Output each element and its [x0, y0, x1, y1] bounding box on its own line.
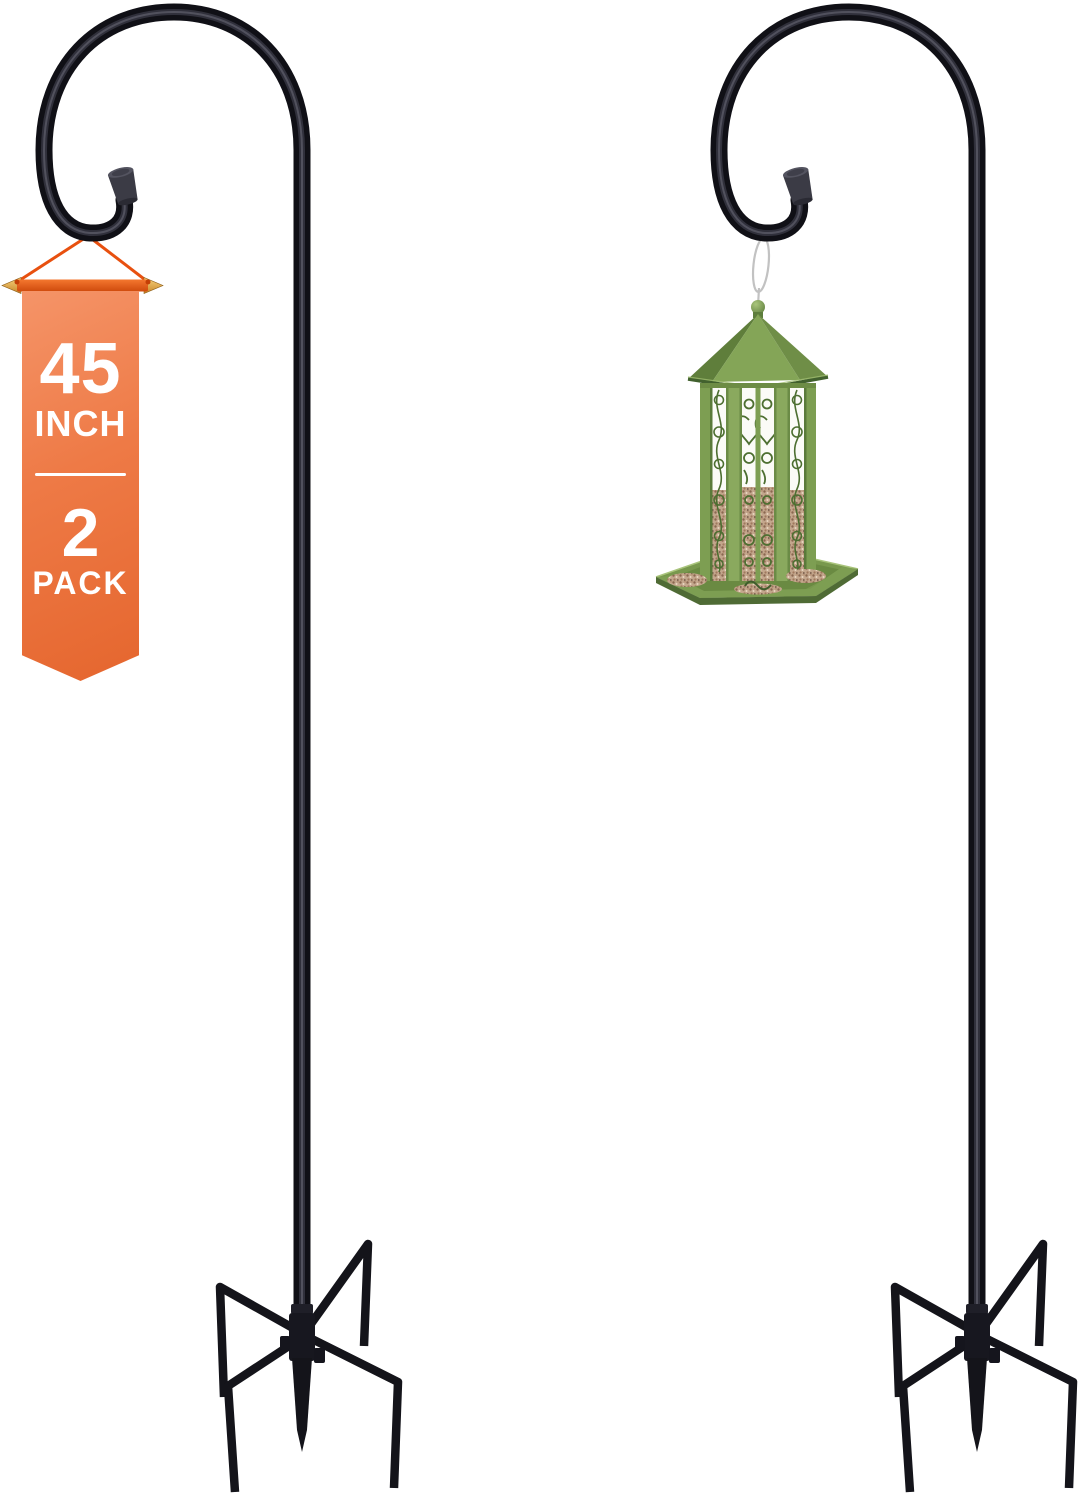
tray-seed-left: [667, 573, 707, 587]
product-scene: [0, 0, 1079, 1500]
badge-pack-value: 2: [22, 499, 139, 567]
badge-pack-unit: PACK: [22, 567, 139, 599]
feeder-body: [700, 383, 816, 581]
feeder-finial-ball: [751, 300, 765, 314]
bird-feeder: [656, 300, 858, 605]
string-knot-left: [15, 280, 20, 285]
badge-divider: [35, 473, 126, 476]
size-badge-ribbon: 45 INCH 2 PACK: [22, 291, 139, 681]
center-panel-mullion: [756, 385, 761, 581]
badge-string-right: [88, 236, 148, 282]
tray-seed-right: [786, 569, 826, 583]
string-knot-right: [146, 280, 151, 285]
feeder-hanger-wire: [751, 237, 772, 306]
feeder-roof: [688, 314, 828, 390]
right-shepherd-hook: [719, 12, 1073, 1492]
badge-string-left: [17, 236, 88, 282]
badge-size-value: 45: [22, 333, 139, 405]
product-image: 45 INCH 2 PACK: [0, 0, 1079, 1500]
left-shepherd-hook: [2, 12, 398, 1492]
badge-size-unit: INCH: [22, 406, 139, 442]
hanger-bar: [17, 280, 148, 292]
